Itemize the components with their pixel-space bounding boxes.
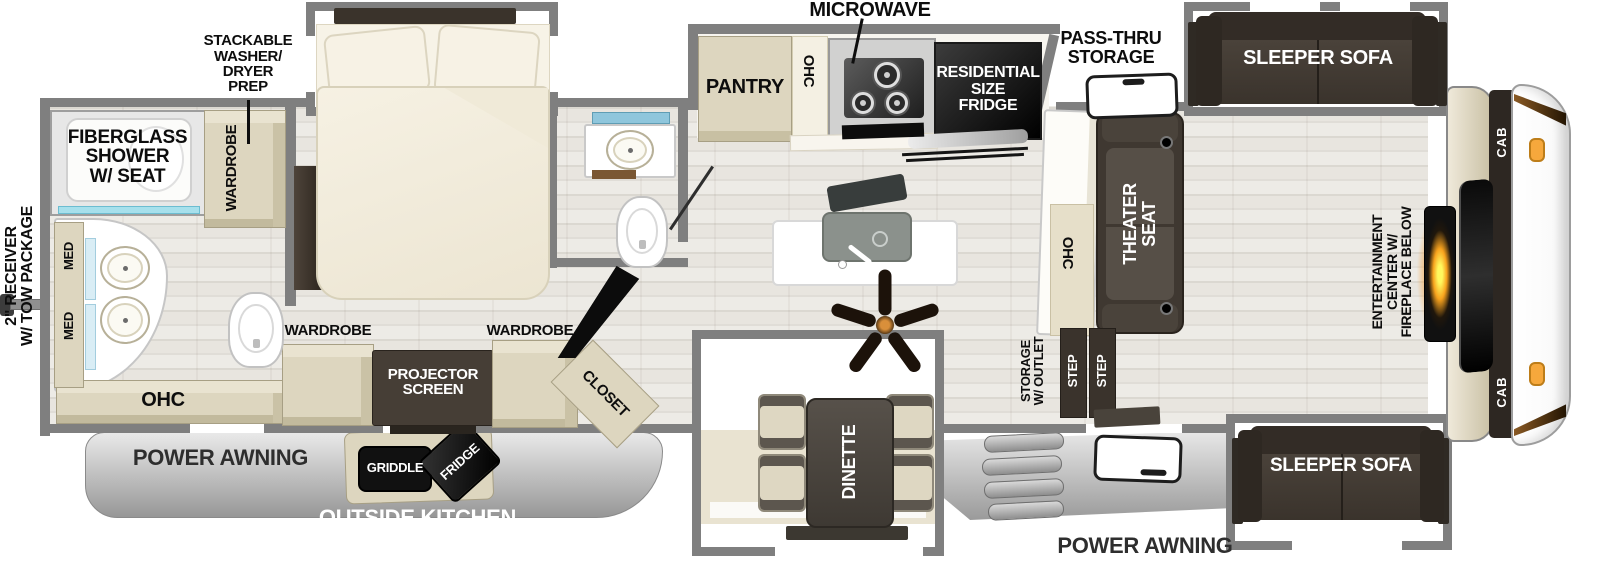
fireplace	[1424, 206, 1456, 342]
wall-left	[40, 98, 50, 436]
midbath-shelf	[592, 112, 670, 124]
pantry-label: PANTRY	[698, 74, 792, 100]
ohc-kitchen-label: OHC	[799, 50, 817, 92]
residential-fridge-label: RESIDENTIAL SIZE FRIDGE	[936, 50, 1040, 130]
window-gap	[549, 36, 558, 92]
window-gap	[1250, 2, 1320, 11]
wall-midbath-bottom	[547, 258, 688, 267]
ceiling-fan-hub	[876, 316, 894, 334]
wardrobe-front-label: WARDROBE	[222, 112, 242, 224]
island-faucet-handle	[838, 260, 847, 269]
projector-base	[390, 426, 476, 434]
wall-bottom-4	[936, 424, 1234, 433]
shower-label: FIBERGLASS SHOWER W/ SEAT	[60, 126, 195, 188]
entertainment-center-label: ENTERTAINMENT CENTER W/ FIREPLACE BELOW	[1366, 166, 1418, 378]
dinette-chair	[758, 394, 806, 450]
burner	[852, 92, 874, 114]
sleeper-sofa-bottom-label: SLEEPER SOFA	[1252, 452, 1430, 480]
bath-sink-1	[100, 246, 150, 290]
entry-step	[988, 500, 1065, 521]
cab-label-bottom: CAB	[1494, 367, 1510, 417]
wardrobe-bottom-1-label: WARDROBE	[278, 322, 378, 340]
power-awning-right-label: POWER AWNING	[1036, 532, 1254, 560]
pass-thru-door-icon	[1085, 72, 1178, 119]
bath-sink-2	[100, 296, 150, 344]
sofa-armrest	[1196, 16, 1222, 106]
step-label-2: STEP	[1095, 346, 1109, 396]
kitchen-slide-wall-top	[688, 24, 1060, 34]
receiver-label: 2" RECEIVER W/ TOW PACKAGE	[0, 176, 40, 376]
island-sink	[822, 212, 912, 262]
cupholder	[1160, 302, 1173, 315]
window-gap	[190, 424, 264, 433]
theater-seat-label: THEATER SEAT	[1118, 146, 1162, 302]
cab-label-top: CAB	[1494, 117, 1510, 167]
burner	[874, 62, 900, 88]
window-gap	[306, 36, 315, 92]
wardrobe-bottom-2-label: WARDROBE	[478, 322, 582, 340]
power-awning-right	[925, 430, 1247, 520]
wall-midbath-right	[678, 104, 688, 242]
step-label-1: STEP	[1066, 346, 1080, 396]
window-gap	[1340, 2, 1410, 11]
ohc-bath-label: OHC	[118, 388, 208, 412]
floorplan-diagram: POWER AWNING POWER AWNING OUTSIDE KITCHE…	[0, 0, 1600, 570]
entry-door-icon	[1093, 434, 1183, 483]
med-label-1: MED	[61, 233, 77, 279]
fan-blade	[879, 270, 892, 316]
shower-glass	[58, 206, 200, 214]
washer-dryer-prep-label: STACKABLE WASHER/ DRYER PREP	[196, 26, 300, 102]
outside-kitchen-label: OUTSIDE KITCHEN	[310, 504, 525, 532]
dinette-chair	[758, 454, 806, 512]
window-gap	[1292, 541, 1402, 550]
midbath-sink	[606, 130, 654, 170]
ohc-living-label: OHC	[1058, 232, 1076, 274]
entertainment-tv	[1459, 179, 1493, 374]
glass-shelf	[85, 238, 96, 300]
burner	[886, 92, 908, 114]
griddle-label: GRIDDLE	[358, 460, 432, 476]
bed-blanket	[316, 86, 550, 300]
outside-fridge-label: FRIDGE	[438, 441, 482, 483]
window-gap	[775, 547, 923, 556]
wardrobe-front	[204, 110, 286, 228]
dinette-mat	[786, 526, 908, 540]
oven-vent	[842, 123, 924, 140]
entry-mat	[1094, 406, 1161, 427]
closet-label: CLOSET	[579, 368, 632, 421]
power-awning-left-label: POWER AWNING	[118, 444, 323, 472]
projector-screen-label: PROJECTOR SCREEN	[374, 362, 492, 402]
wardrobe-bottom-1	[282, 344, 374, 426]
sleeper-sofa-top-label: SLEEPER SOFA	[1228, 44, 1408, 72]
midbath-cabinet-edge	[592, 170, 636, 179]
marker-light-top	[1529, 138, 1545, 162]
glass-shelf	[85, 304, 96, 370]
wall-top-2	[548, 98, 694, 107]
bedroom-window	[334, 8, 516, 24]
front-bath-toilet	[228, 292, 284, 368]
midbath-toilet	[616, 196, 668, 268]
washer-dryer-pointer-line	[247, 100, 250, 144]
pass-thru-storage-label: PASS-THRU STORAGE	[1052, 26, 1170, 70]
storage-outlet-label: STORAGE W/ OUTLET	[1017, 321, 1047, 421]
microwave-label: MICROWAVE	[790, 0, 950, 20]
med-label-2: MED	[61, 303, 77, 349]
dinette-label: DINETTE	[839, 407, 859, 517]
marker-light-bottom	[1529, 362, 1545, 386]
sofa-armrest	[1412, 16, 1438, 106]
kitchen-slide-wall-left	[688, 24, 698, 110]
